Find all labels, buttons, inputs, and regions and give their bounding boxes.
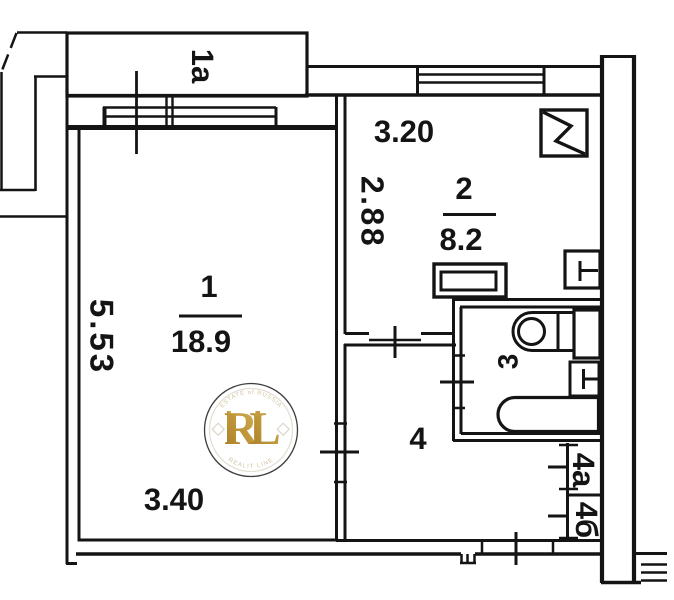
svg-text:2.88: 2.88 (355, 176, 391, 248)
svg-text:3.20: 3.20 (374, 114, 434, 149)
svg-text:8.2: 8.2 (439, 222, 482, 257)
svg-text:5.53: 5.53 (83, 299, 120, 375)
svg-text:3.40: 3.40 (144, 482, 204, 517)
svg-text:1a: 1a (185, 49, 220, 84)
svg-text:3: 3 (492, 354, 523, 370)
svg-text:4: 4 (409, 421, 427, 456)
svg-text:L: L (249, 403, 280, 455)
svg-text:4б: 4б (569, 502, 604, 538)
svg-text:1: 1 (200, 269, 217, 304)
svg-text:2: 2 (455, 171, 472, 206)
svg-text:18.9: 18.9 (171, 324, 231, 359)
svg-text:4a: 4a (566, 453, 601, 488)
